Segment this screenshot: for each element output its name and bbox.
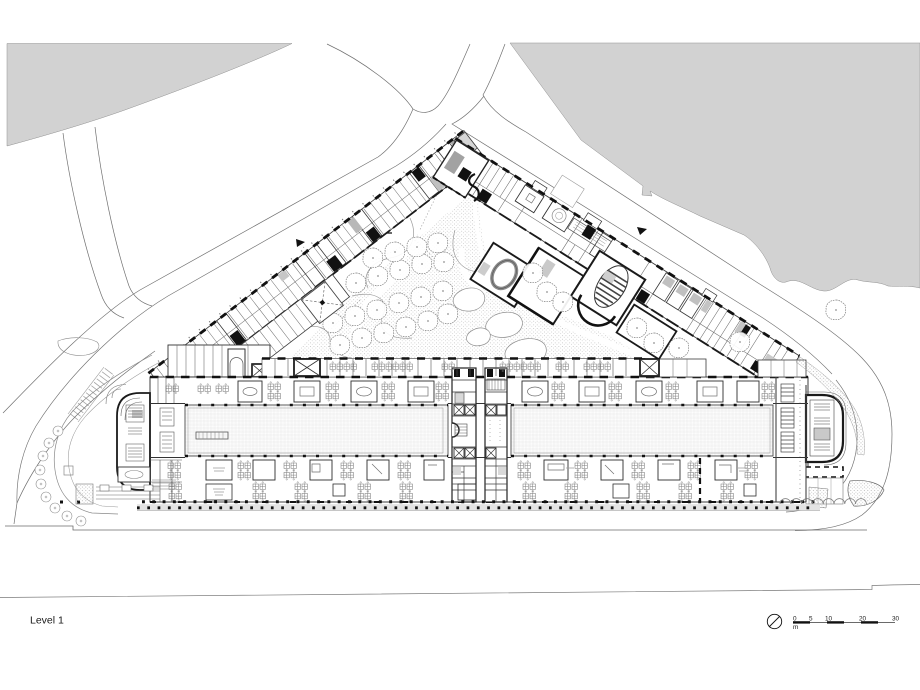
svg-text:20: 20: [859, 615, 867, 622]
svg-text:10: 10: [825, 615, 833, 622]
svg-text:Level 1: Level 1: [30, 615, 64, 627]
svg-text:30: 30: [892, 615, 900, 622]
svg-text:0: 0: [793, 615, 797, 622]
svg-text:5: 5: [809, 615, 813, 622]
svg-text:m: m: [793, 624, 798, 631]
